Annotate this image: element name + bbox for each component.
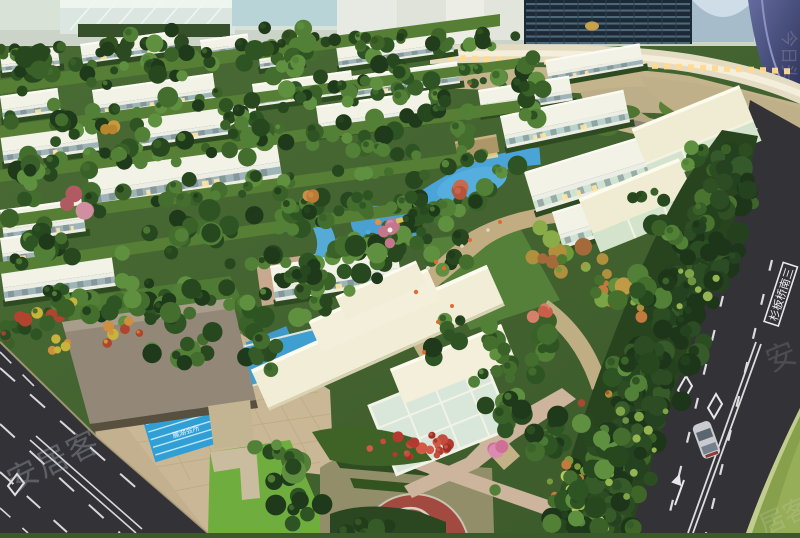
svg-text:今日头条: 今日头条 <box>779 30 798 98</box>
